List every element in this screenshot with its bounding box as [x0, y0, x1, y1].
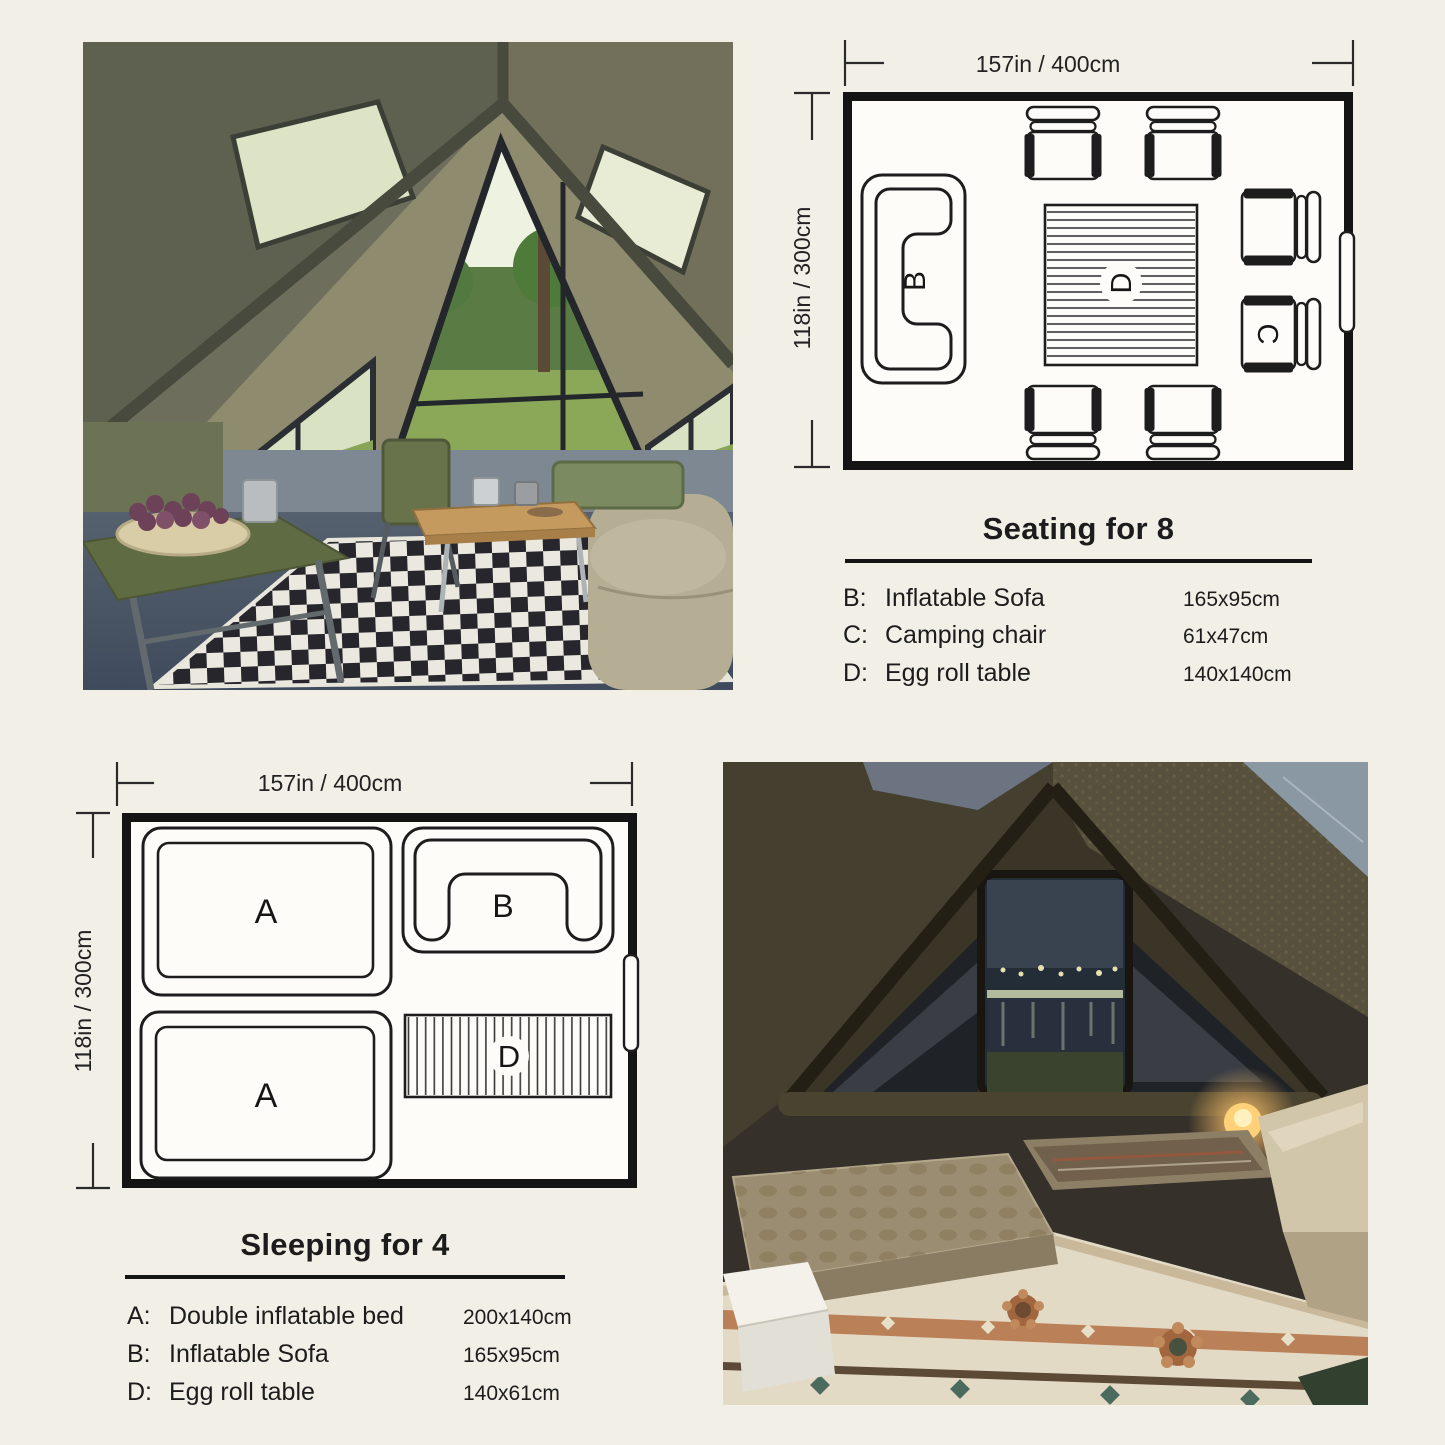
legend-row: C:Camping chair 61x47cm: [843, 620, 1046, 650]
legend-key: D:: [127, 1377, 169, 1407]
legend-name: Double inflatable bed: [169, 1302, 404, 1330]
legend-name: Egg roll table: [885, 659, 1031, 687]
width-dimension-label: 157in / 400cm: [258, 770, 402, 796]
legend-key: B:: [843, 583, 885, 613]
legend-name: Inflatable Sofa: [885, 584, 1045, 612]
dock-lights: [987, 990, 1123, 998]
product-infographic: 157in / 400cm 118in / 300cm B D: [0, 0, 1445, 1445]
sleeping-floor-plan: 157in / 400cm 118in / 300cm A A B: [55, 750, 665, 1210]
legend-row: D:Egg roll table 140x140cm: [843, 658, 1031, 688]
bed-a-bottom-label: A: [255, 1077, 278, 1115]
door-marker: [1340, 232, 1355, 332]
camp-bench: [553, 462, 683, 508]
door-marker: [624, 955, 638, 1051]
sofa-b-label: B: [899, 271, 932, 291]
sofa-b: B: [862, 175, 965, 383]
seating-title: Seating for 8: [845, 511, 1312, 563]
height-dimension-label: 118in / 300cm: [70, 930, 96, 1073]
legend-name: Inflatable Sofa: [169, 1340, 329, 1368]
legend-row: B:Inflatable Sofa 165x95cm: [843, 583, 1045, 613]
chair-c-label: C: [1251, 324, 1283, 345]
legend-row: D:Egg roll table 140x61cm: [127, 1377, 315, 1407]
sofa-b: B: [403, 828, 613, 952]
height-dimension-label: 118in / 300cm: [789, 207, 815, 350]
reeds: [987, 1052, 1123, 1092]
inflatable-sofa: [588, 494, 733, 690]
legend-name: Egg roll table: [169, 1378, 315, 1406]
metal-cup: [243, 480, 277, 522]
legend-size: 165x95cm: [1183, 585, 1280, 615]
bed-a-top: A: [143, 828, 391, 995]
legend-key: A:: [127, 1301, 169, 1331]
legend-size: 200x140cm: [463, 1303, 572, 1333]
legend-key: C:: [843, 620, 885, 650]
bed-a-top-label: A: [255, 893, 278, 931]
water: [987, 998, 1123, 1056]
height-dimension: 118in / 300cm: [70, 813, 110, 1188]
back-window: [981, 874, 1129, 1096]
legend-row: B:Inflatable Sofa 165x95cm: [127, 1339, 329, 1369]
legend-size: 165x95cm: [463, 1341, 560, 1371]
lamp-core: [1234, 1109, 1252, 1127]
seating-floor-plan: 157in / 400cm 118in / 300cm B D: [780, 30, 1365, 485]
height-dimension: 118in / 300cm: [789, 93, 830, 467]
width-dimension: 157in / 400cm: [845, 40, 1353, 86]
legend-name: Camping chair: [885, 621, 1046, 649]
table-d-label: D: [498, 1039, 520, 1074]
sofa-b-label: B: [492, 888, 513, 924]
table-d: D: [1045, 205, 1197, 365]
interior-night-photo: [723, 762, 1368, 1405]
legend-row: A:Double inflatable bed 200x140cm: [127, 1301, 404, 1331]
table-d-label: D: [1106, 273, 1138, 294]
sleeping-title: Sleeping for 4: [125, 1227, 565, 1279]
width-dimension: 157in / 400cm: [117, 762, 632, 806]
width-dimension-label: 157in / 400cm: [976, 51, 1120, 77]
table-d: D: [405, 1015, 611, 1097]
legend-key: D:: [843, 658, 885, 688]
legend-size: 140x140cm: [1183, 660, 1292, 690]
bed-a-bottom: A: [141, 1012, 391, 1178]
legend-size: 61x47cm: [1183, 622, 1268, 652]
interior-day-photo: [83, 42, 733, 690]
legend-key: B:: [127, 1339, 169, 1369]
legend-size: 140x61cm: [463, 1379, 560, 1409]
